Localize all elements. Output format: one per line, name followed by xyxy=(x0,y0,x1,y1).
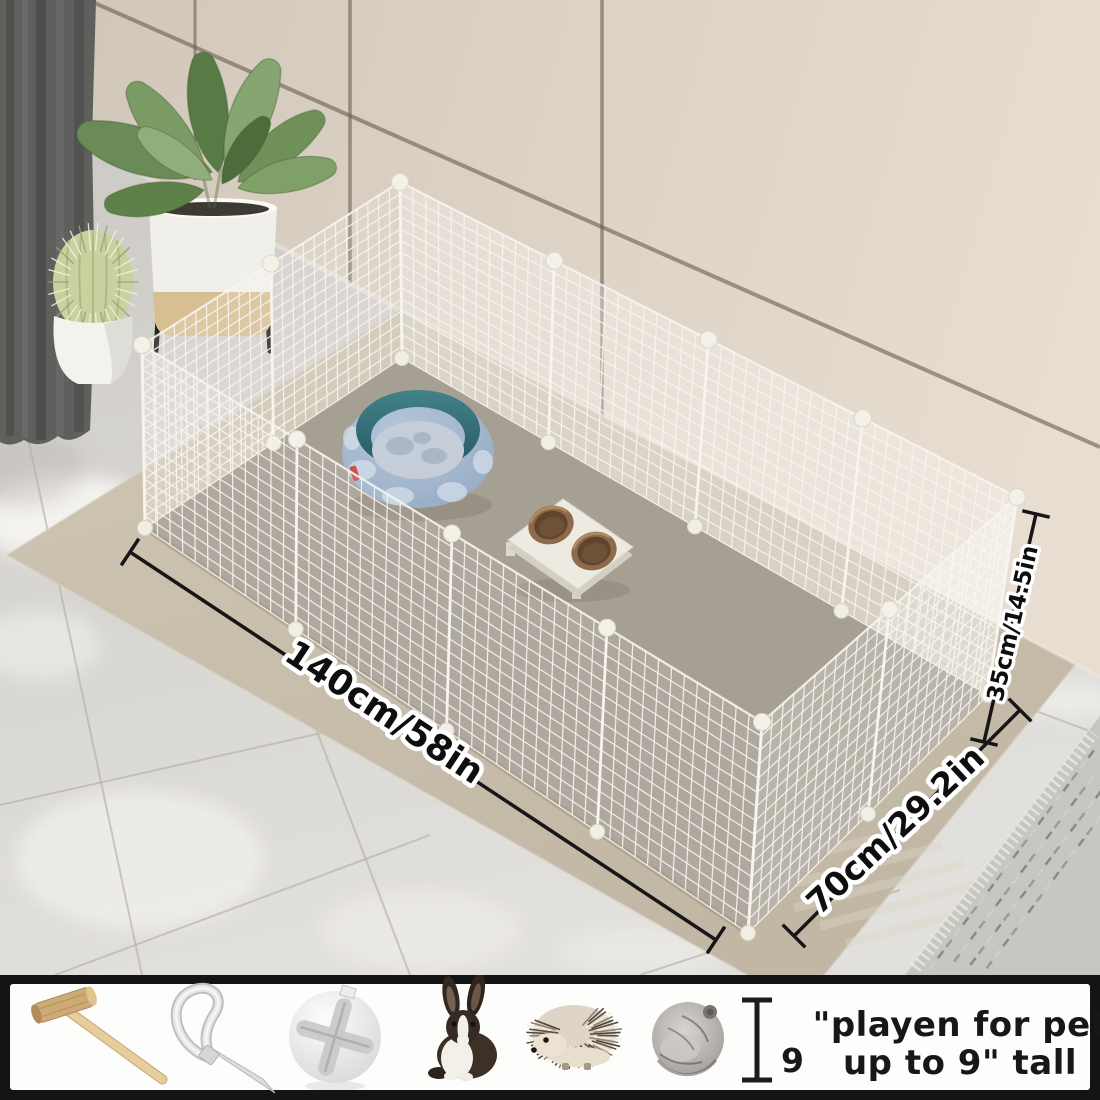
cactus-pot xyxy=(54,316,133,384)
room-scene: 140cm/58in 70cm/29.2in 35cm/14.5in xyxy=(0,0,1100,975)
caption-line-1: "playen for pet xyxy=(813,1005,1100,1045)
legend-strip: 9 "playen for pet up to 9" tall xyxy=(0,975,1100,1100)
product-image: 140cm/58in 70cm/29.2in 35cm/14.5in xyxy=(0,0,1100,1100)
bed-cushion xyxy=(372,421,464,479)
caption-line-2: up to 9" tall xyxy=(843,1043,1077,1083)
gauge-value: 9 xyxy=(781,1041,804,1080)
hamster-icon xyxy=(652,1002,724,1075)
